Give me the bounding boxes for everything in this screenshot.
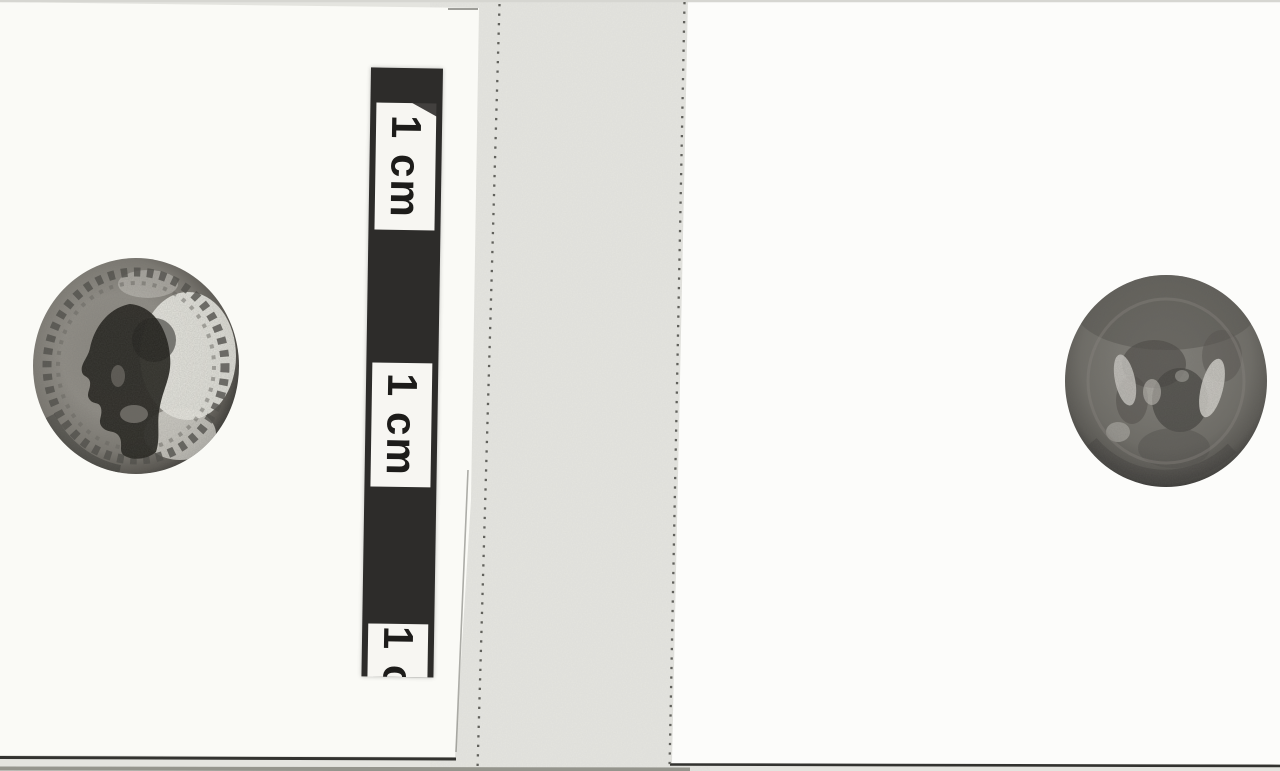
scale-bar-segment-2: 1 cm	[370, 362, 432, 487]
coin-photo-reverse	[1062, 272, 1270, 490]
left-panel-bottom-edge	[0, 758, 456, 760]
scale-label-2: 1 cm	[380, 373, 424, 477]
scale-bar: 1 cm 1 cm 1 c	[361, 67, 443, 677]
coin-obverse-detail	[30, 256, 242, 476]
scale-label-1: 1 cm	[384, 114, 428, 218]
scale-bar-segment-1: 1 cm	[374, 103, 436, 231]
coin-reverse-detail	[1062, 272, 1270, 490]
scale-label-3: 1 c	[376, 626, 419, 678]
page-bottom-band	[0, 769, 690, 770]
right-panel-bottom-edge	[670, 765, 1280, 767]
photo-album-scan: 1 cm 1 cm 1 c	[0, 0, 1280, 771]
coin-photo-obverse	[30, 256, 242, 476]
scale-bar-segment-3: 1 c	[367, 623, 428, 677]
